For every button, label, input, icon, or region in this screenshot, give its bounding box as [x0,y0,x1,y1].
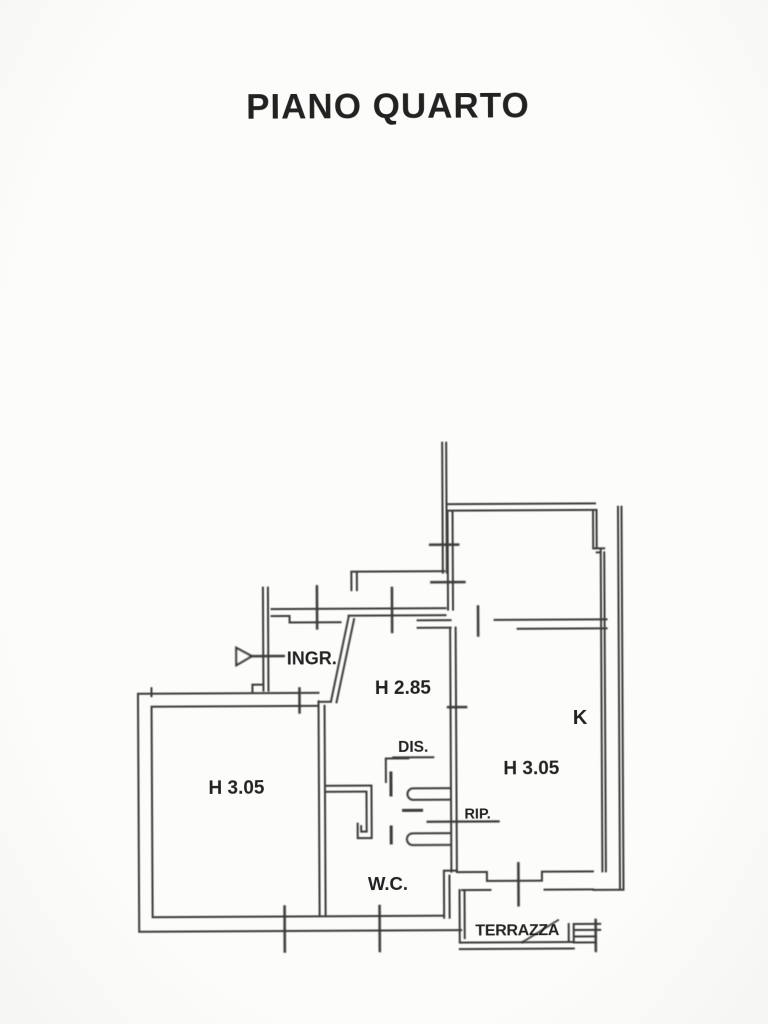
page-title: PIANO QUARTO [246,86,530,126]
alcove-right-wall [593,510,604,553]
entrance-left-wall [263,588,269,691]
label-bathroom: W.C. [368,873,408,894]
terrace-walls [459,889,600,949]
label-entrance: INGR. [287,648,337,668]
wc-right-wall [444,871,457,918]
label-left-room-height: H 3.05 [208,778,265,799]
scanned-floor-plan-page: PIANO QUARTO INGR. H 2.85 DIS. RIP. W.C.… [0,0,768,1024]
hall-top-wall [272,608,451,628]
label-storage: RIP. [464,806,490,822]
hall-right-wall [450,628,457,872]
alcove-left-wall [448,512,454,610]
kitchen-right-wall [601,548,606,871]
kitchen-bottom-wall [457,871,593,890]
closet-shelf-brackets [407,788,451,845]
label-terrace: TERRAZZA [475,922,560,939]
label-hall-height: H 2.85 [375,678,432,699]
floor-plan-drawing: PIANO QUARTO INGR. H 2.85 DIS. RIP. W.C.… [0,0,768,1024]
window-door-ticks [283,544,596,953]
wc-partition [325,786,371,839]
entrance-door-icon [236,648,252,666]
label-closet: DIS. [398,739,428,756]
outer-right-wall [591,507,623,890]
closet-partition [386,758,409,782]
shaft-wall [442,443,447,573]
label-kitchen-height: H 3.05 [503,758,560,779]
left-room-walls [138,684,461,932]
alcove-top-wall [447,503,595,510]
kitchen-top-wall [495,619,607,629]
duct-strip-wall [351,571,444,590]
plan-labels: PIANO QUARTO INGR. H 2.85 DIS. RIP. W.C.… [205,86,589,941]
label-kitchen: K [573,707,588,729]
